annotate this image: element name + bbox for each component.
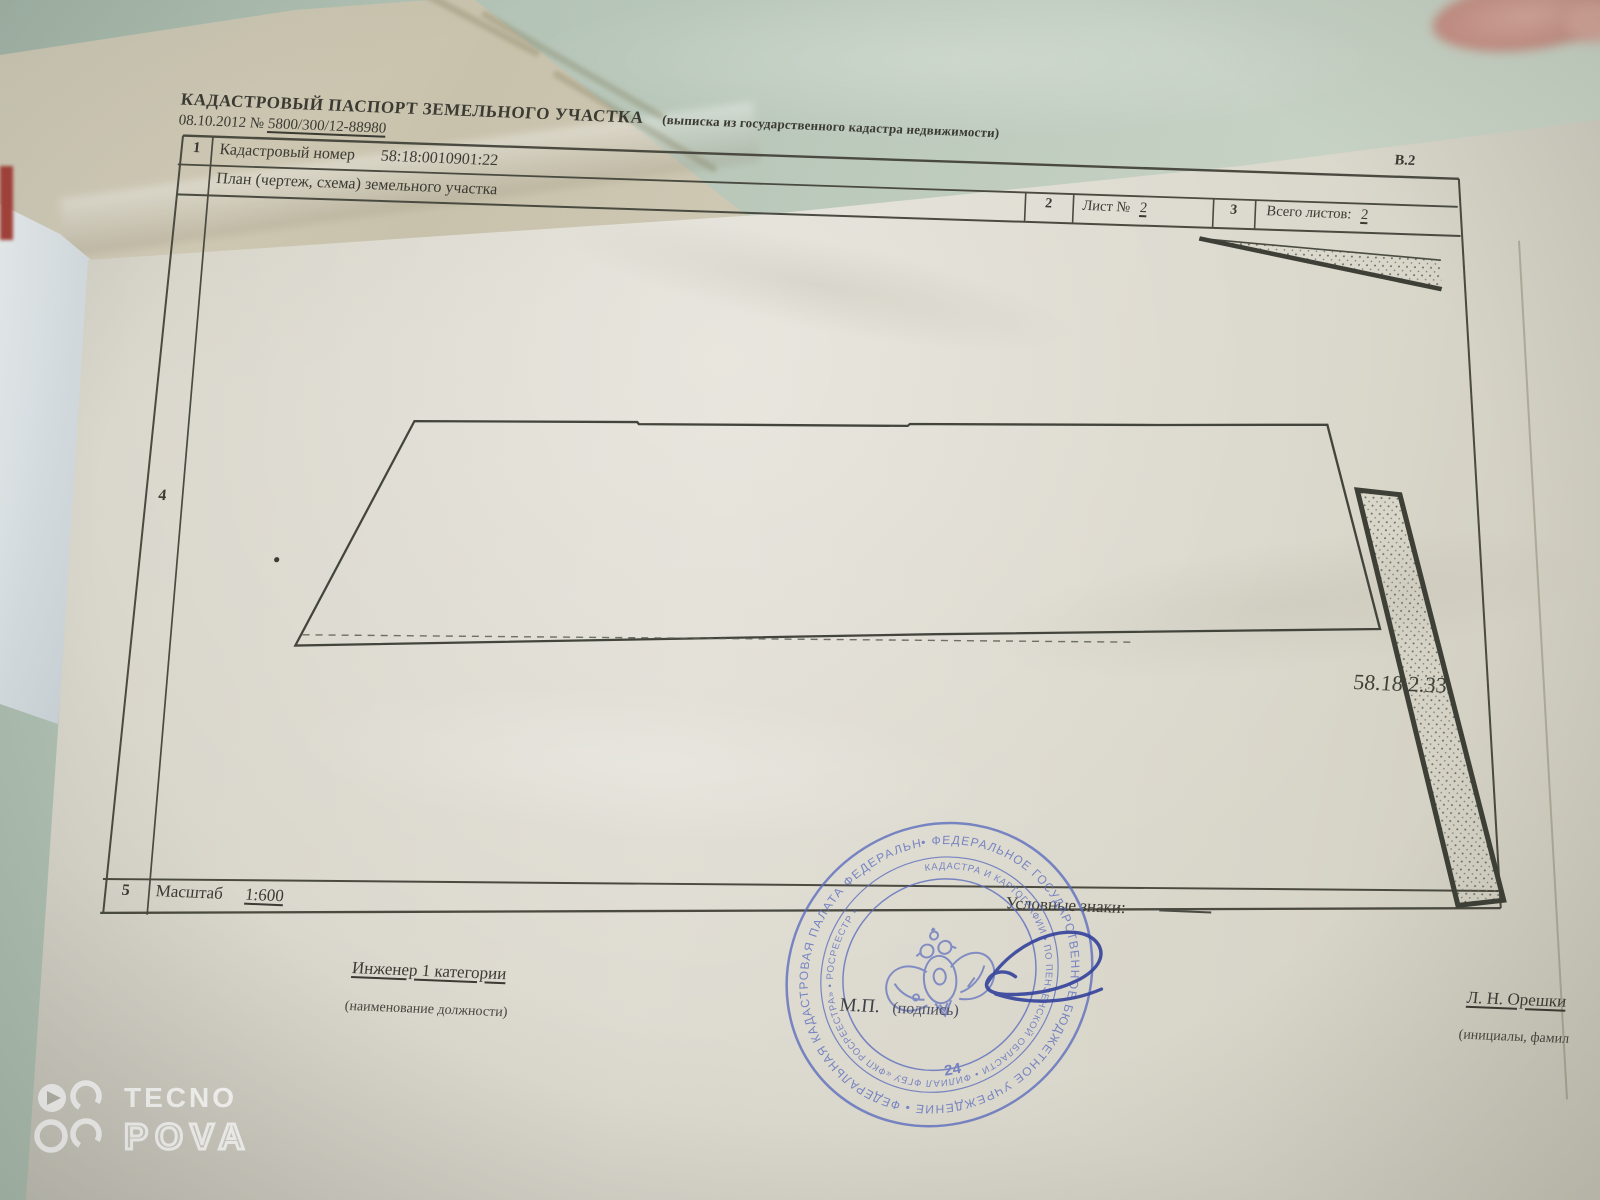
parcel-outline bbox=[295, 384, 1402, 688]
scale-label: Масштаб bbox=[155, 881, 224, 903]
col3-number: 3 bbox=[1212, 202, 1256, 220]
handwritten-signature bbox=[932, 895, 1166, 1033]
row5-number: 5 bbox=[105, 881, 147, 901]
total-sheets-value: 2 bbox=[1360, 207, 1369, 223]
cadastral-passport-document: КАДАСТРОВЫЙ ПАСПОРТ ЗЕМЕЛЬНОГО УЧАСТКА (… bbox=[0, 60, 1600, 1200]
photo-of-cadastral-passport: { "watermark": { "brand": "TECNO", "mode… bbox=[0, 0, 1600, 1200]
cadastral-number-value: 58:18:0010901:22 bbox=[380, 148, 499, 170]
watermark-model: POVA bbox=[124, 1116, 251, 1158]
mp-label: М.П. bbox=[839, 995, 881, 1018]
tecno-logo-icon bbox=[34, 1080, 110, 1162]
hatched-boundary-strip bbox=[1312, 490, 1548, 907]
row1-number: 1 bbox=[183, 140, 211, 158]
survey-point-dot bbox=[274, 557, 280, 562]
col2-number: 2 bbox=[1024, 195, 1074, 213]
camera-watermark bbox=[34, 1080, 110, 1167]
red-object-left-edge bbox=[0, 166, 13, 240]
mp-signature-line: М.П. (подпись) bbox=[838, 995, 960, 1022]
scale-value: 1:600 bbox=[244, 885, 285, 905]
sheet-label: Лист № bbox=[1082, 198, 1132, 216]
stamp-number: 24 bbox=[943, 1060, 963, 1080]
sheet-cell: Лист № 2 bbox=[1082, 198, 1149, 218]
engineer-name: Л. Н. Орешки bbox=[1466, 988, 1568, 1012]
signature-caption: (подпись) bbox=[892, 1000, 960, 1020]
watermark-brand: TECNO bbox=[124, 1082, 237, 1114]
total-sheets-label: Всего листов: bbox=[1266, 203, 1353, 222]
row4-number: 4 bbox=[142, 486, 182, 505]
sheet-value: 2 bbox=[1139, 200, 1148, 216]
